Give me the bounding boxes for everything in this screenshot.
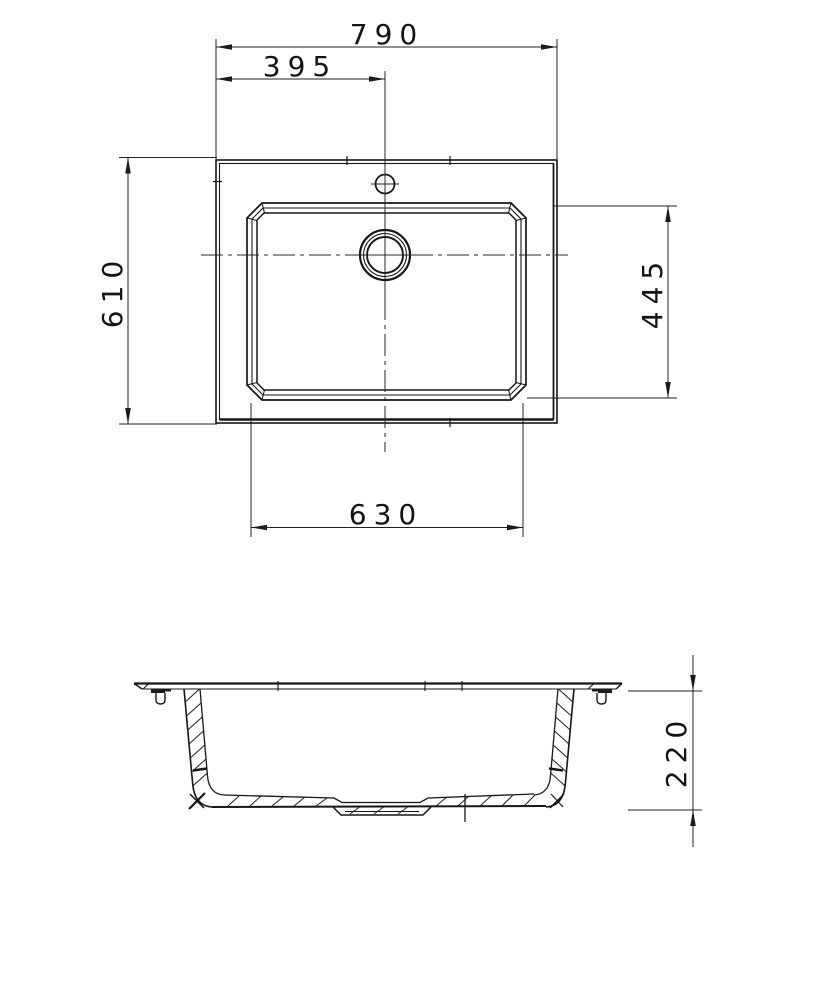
dim-overall-width-label: 790 (350, 18, 424, 51)
mounting-clip-right (592, 689, 612, 704)
mounting-clip-left (151, 689, 171, 704)
dim-bowl-width-label: 630 (349, 498, 423, 531)
bowl-outline (247, 203, 526, 400)
section-bottom (212, 794, 546, 822)
section-view: 220 (134, 655, 702, 847)
section-walls (184, 689, 574, 809)
dim-faucet-offset: 395 (216, 50, 385, 83)
dim-height: 220 (628, 655, 702, 847)
dim-overall-width: 790 (216, 18, 557, 159)
dim-faucet-offset-label: 395 (263, 50, 337, 83)
sink-technical-drawing: 790 395 610 445 (0, 0, 826, 999)
section-rim (134, 681, 622, 691)
drawing-sheet: 790 395 610 445 (0, 0, 826, 999)
dim-bowl-depth-label: 445 (636, 255, 669, 329)
dim-overall-depth: 610 (96, 158, 217, 425)
plan-view: 790 395 610 445 (96, 18, 677, 537)
bowl-corner-facets (247, 203, 526, 400)
dim-bowl-depth: 445 (527, 206, 677, 398)
dim-overall-depth-label: 610 (96, 254, 129, 328)
dim-height-label: 220 (660, 714, 693, 788)
